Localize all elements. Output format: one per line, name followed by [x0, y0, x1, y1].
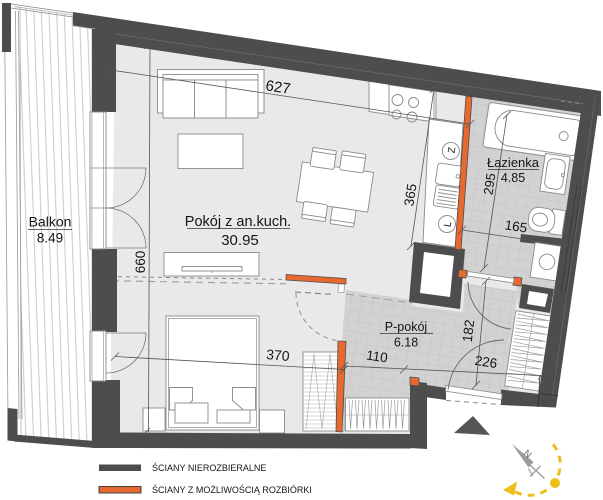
svg-text:6.18: 6.18 [394, 336, 418, 350]
svg-text:30.95: 30.95 [221, 232, 259, 249]
svg-text:4.85: 4.85 [501, 171, 525, 185]
svg-text:Balkon: Balkon [29, 214, 72, 230]
svg-text:182: 182 [460, 319, 478, 343]
svg-text:8.49: 8.49 [37, 231, 63, 246]
svg-text:295: 295 [480, 172, 498, 196]
svg-text:ŚCIANY NIEROZBIERALNE: ŚCIANY NIEROZBIERALNE [152, 462, 266, 473]
svg-text:Pokój z an.kuch.: Pokój z an.kuch. [185, 214, 291, 230]
svg-text:ŚCIANY Z MOŻLIWOŚCIĄ ROZBIÓRKI: ŚCIANY Z MOŻLIWOŚCIĄ ROZBIÓRKI [152, 484, 312, 495]
svg-text:110: 110 [365, 347, 389, 365]
svg-text:660: 660 [133, 251, 148, 274]
svg-text:P-pokój: P-pokój [385, 320, 427, 334]
svg-text:Łazienka: Łazienka [487, 155, 540, 170]
svg-text:370: 370 [266, 346, 291, 364]
